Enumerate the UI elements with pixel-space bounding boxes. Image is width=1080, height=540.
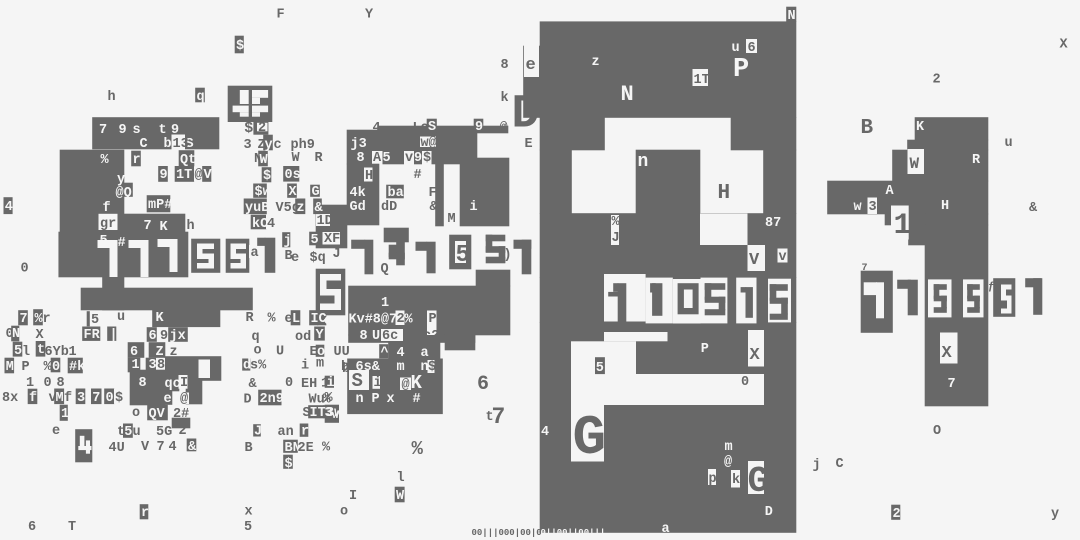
svg-text:f: f (64, 391, 72, 406)
svg-text:9: 9 (160, 329, 168, 344)
svg-text:9: 9 (414, 151, 422, 166)
svg-text:D: D (765, 505, 773, 520)
svg-text:Kv#8@7: Kv#8@7 (349, 313, 398, 328)
svg-text:P: P (701, 342, 709, 357)
svg-text:00|||000|00|0: 00|||000|00|0 (472, 528, 542, 538)
svg-text:9: 9 (160, 168, 168, 183)
svg-text:w@: w@ (421, 136, 437, 151)
svg-text:&: & (1029, 201, 1038, 216)
svg-text:z: z (297, 201, 305, 216)
svg-text:c: c (274, 138, 282, 153)
svg-text:z: z (170, 345, 178, 360)
svg-text:N: N (621, 82, 634, 107)
svg-text:X: X (1060, 38, 1069, 53)
svg-text:V: V (141, 440, 150, 455)
svg-text:W: W (292, 151, 301, 166)
svg-text:q: q (252, 330, 260, 345)
svg-text:b: b (164, 137, 172, 152)
svg-text:h: h (108, 90, 116, 105)
svg-text:%: % (322, 441, 331, 456)
svg-text:$: $ (428, 360, 436, 375)
svg-text:5: 5 (100, 234, 108, 249)
svg-text:P: P (22, 360, 30, 375)
svg-text:7: 7 (92, 391, 100, 406)
svg-text:0: 0 (106, 391, 114, 406)
svg-text:U: U (276, 345, 284, 360)
svg-text:3: 3 (869, 200, 877, 215)
svg-text:K: K (916, 120, 925, 135)
svg-text:u: u (133, 425, 141, 440)
svg-text:Q: Q (381, 262, 389, 277)
svg-text:f: f (29, 391, 37, 406)
svg-text:f: f (103, 201, 111, 216)
svg-text:4: 4 (397, 346, 405, 361)
svg-text:s: s (791, 299, 797, 310)
svg-text:i: i (301, 359, 309, 374)
svg-text:C: C (319, 312, 327, 327)
svg-text:an: an (278, 425, 294, 440)
svg-text:9: 9 (119, 123, 127, 138)
svg-text:y: y (265, 138, 273, 153)
svg-text:IT: IT (310, 406, 326, 421)
svg-text:9: 9 (171, 123, 179, 138)
svg-text:&: & (188, 440, 197, 455)
svg-text:K: K (411, 372, 423, 394)
svg-text:x: x (387, 392, 395, 407)
svg-text:l: l (397, 471, 405, 486)
svg-text:ƒ: ƒ (988, 281, 995, 293)
svg-text:1T: 1T (694, 73, 710, 88)
svg-text:gr: gr (100, 217, 116, 232)
svg-text:P: P (372, 392, 380, 407)
svg-text:5: 5 (456, 242, 470, 269)
svg-text:T: T (68, 520, 76, 535)
svg-text:#: # (414, 168, 422, 183)
svg-text:8: 8 (157, 358, 165, 373)
svg-text:1T: 1T (176, 168, 192, 183)
svg-text:o: o (340, 505, 348, 520)
svg-text:K: K (160, 220, 169, 235)
svg-text:EH: EH (301, 377, 317, 392)
svg-text:@: @ (500, 121, 508, 136)
svg-text:kC: kC (252, 217, 268, 232)
svg-text:@: @ (195, 168, 203, 183)
svg-text:I: I (311, 312, 319, 327)
svg-text:r: r (43, 312, 51, 327)
svg-text:4: 4 (169, 440, 177, 455)
svg-text:j: j (284, 234, 292, 249)
svg-text:t: t (159, 123, 167, 138)
svg-text:c2: c2 (423, 329, 439, 344)
svg-text:D: D (244, 393, 252, 408)
svg-text:B: B (861, 117, 874, 140)
svg-text:7: 7 (144, 219, 152, 234)
svg-text:X: X (36, 328, 45, 343)
svg-text:2#: 2# (173, 407, 189, 422)
svg-text:r: r (133, 153, 141, 168)
svg-text:X: X (942, 344, 953, 363)
svg-text:%: % (268, 312, 277, 327)
svg-text:D: D (512, 89, 540, 142)
svg-text:2: 2 (893, 507, 901, 522)
svg-text:qc: qc (165, 377, 181, 392)
svg-text:od: od (295, 330, 311, 345)
svg-text:6: 6 (28, 520, 36, 535)
svg-text:a: a (251, 246, 259, 261)
svg-text:M: M (448, 212, 456, 227)
svg-text:6c: 6c (382, 329, 398, 344)
svg-text:6: 6 (748, 41, 756, 56)
svg-text:l: l (22, 345, 30, 360)
svg-text:N: N (788, 9, 796, 24)
svg-text:0: 0 (285, 376, 293, 391)
svg-text:0: 0 (21, 262, 29, 277)
svg-text:2: 2 (933, 73, 941, 88)
svg-text:y: y (1051, 507, 1059, 522)
svg-text:X: X (289, 185, 298, 200)
svg-text:%: % (612, 215, 621, 230)
svg-text:7: 7 (492, 404, 506, 430)
svg-text:UU: UU (334, 345, 350, 360)
svg-text:$: $ (236, 39, 244, 54)
svg-text:x: x (245, 505, 253, 520)
svg-text:N: N (12, 327, 20, 342)
svg-text:P: P (733, 55, 749, 85)
svg-text:e: e (164, 392, 172, 407)
svg-text:7: 7 (948, 377, 956, 392)
svg-text:2: 2 (179, 424, 187, 439)
svg-text:m: m (725, 440, 733, 455)
svg-text:5: 5 (383, 151, 391, 166)
svg-text:8: 8 (360, 329, 368, 344)
svg-text:G: G (573, 406, 607, 470)
svg-text:V: V (749, 251, 760, 270)
svg-text:H: H (941, 199, 949, 214)
svg-text:#: # (118, 236, 126, 251)
svg-text:M: M (56, 391, 64, 406)
svg-text:I: I (180, 376, 188, 391)
svg-text:5: 5 (124, 425, 132, 440)
svg-text:a: a (662, 522, 670, 537)
svg-text:G: G (312, 185, 320, 200)
svg-text:F: F (277, 8, 285, 23)
svg-text:C: C (140, 137, 148, 152)
svg-text:R: R (315, 151, 324, 166)
svg-text:S: S (352, 370, 363, 392)
svg-text:i: i (327, 376, 335, 391)
svg-text:h: h (187, 219, 195, 234)
svg-text:E: E (525, 137, 533, 152)
svg-text:O: O (933, 424, 941, 439)
svg-text:%: % (412, 438, 424, 460)
svg-text:k: k (732, 473, 740, 488)
svg-text:4: 4 (541, 425, 549, 440)
svg-text:5: 5 (311, 233, 319, 248)
svg-text:u: u (732, 41, 740, 56)
svg-text:6Yb: 6Yb (45, 345, 69, 360)
svg-text:u: u (1005, 136, 1013, 151)
svg-text:yuB: yuB (245, 201, 269, 216)
svg-text:3: 3 (244, 138, 252, 153)
svg-text:8: 8 (357, 151, 365, 166)
svg-text:j3: j3 (351, 137, 367, 152)
svg-text:5: 5 (14, 344, 22, 359)
svg-text:87: 87 (765, 216, 781, 231)
svg-text:C: C (836, 457, 844, 472)
svg-text:5: 5 (91, 313, 99, 328)
svg-text:A: A (373, 151, 382, 166)
svg-text:8: 8 (139, 376, 147, 391)
svg-text:i: i (470, 200, 478, 215)
svg-text:J: J (333, 247, 341, 262)
svg-text:z: z (592, 55, 600, 70)
svg-text:s%: s% (250, 359, 267, 374)
svg-text:6: 6 (149, 329, 157, 344)
svg-text:I: I (349, 489, 357, 504)
svg-text:K: K (156, 311, 165, 326)
svg-text:R: R (972, 153, 981, 168)
svg-text:7: 7 (99, 123, 107, 138)
svg-text:2: 2 (258, 121, 266, 136)
svg-text:0: 0 (52, 360, 60, 375)
svg-text:n: n (356, 392, 364, 407)
svg-text:W: W (396, 489, 405, 504)
svg-text:4: 4 (373, 121, 381, 136)
svg-text:7: 7 (157, 440, 165, 455)
svg-text:Qt: Qt (180, 153, 196, 168)
svg-text:jx: jx (170, 329, 186, 344)
svg-text:8: 8 (57, 376, 65, 391)
svg-text:@: @ (402, 378, 410, 393)
svg-text:u: u (117, 310, 125, 325)
svg-text:H: H (718, 182, 731, 205)
svg-text:$w: $w (255, 185, 272, 200)
svg-text:3: 3 (77, 391, 85, 406)
svg-text:4: 4 (267, 217, 275, 232)
svg-text:dD: dD (381, 200, 397, 215)
svg-text:$: $ (285, 457, 293, 472)
svg-text:1: 1 (381, 296, 389, 311)
svg-text:U: U (372, 329, 380, 344)
svg-text:): ) (504, 248, 512, 263)
svg-text:$: $ (115, 391, 123, 406)
svg-text:w: w (333, 411, 339, 422)
svg-text:e: e (52, 424, 60, 439)
svg-text:v: v (779, 250, 787, 265)
svg-text:1: 1 (894, 209, 912, 243)
svg-text:1: 1 (132, 358, 140, 373)
svg-text:P: P (429, 312, 437, 327)
svg-text:k: k (501, 91, 509, 106)
svg-text:e: e (526, 56, 536, 75)
svg-text:8: 8 (501, 58, 509, 73)
svg-text:m: m (397, 360, 405, 375)
svg-text:FR: FR (84, 328, 101, 343)
svg-text:0s: 0s (285, 168, 301, 183)
svg-text:e: e (291, 251, 299, 266)
svg-text:M: M (6, 360, 14, 375)
svg-text:S: S (428, 120, 436, 135)
svg-text:w: w (854, 200, 863, 215)
svg-text:3: 3 (325, 406, 333, 421)
svg-text:r: r (301, 425, 309, 440)
svg-text:&: & (315, 201, 324, 216)
svg-text:1: 1 (26, 376, 34, 391)
svg-text:r: r (141, 506, 149, 521)
svg-text:1: 1 (61, 407, 69, 422)
svg-text:v: v (405, 151, 413, 166)
svg-text:0: 0 (44, 376, 52, 391)
svg-text:#k: #k (69, 360, 85, 375)
svg-text:B: B (245, 441, 253, 456)
svg-text:mP#: mP# (148, 198, 172, 213)
svg-text:7: 7 (862, 263, 868, 274)
svg-text:2: 2 (397, 312, 405, 327)
svg-text:QV: QV (149, 407, 166, 422)
svg-text:13: 13 (173, 137, 189, 152)
svg-text:Gd: Gd (350, 200, 366, 215)
svg-text:m: m (316, 357, 324, 372)
svg-text:H: H (365, 169, 373, 184)
svg-text:$q: $q (310, 251, 326, 266)
svg-text:&: & (430, 200, 439, 215)
svg-text:V: V (204, 168, 213, 183)
svg-text:j: j (813, 458, 821, 473)
svg-text:L: L (292, 312, 300, 327)
svg-text:s: s (133, 123, 141, 138)
svg-text:@: @ (180, 392, 188, 407)
svg-text:Lo: Lo (413, 121, 429, 136)
svg-text:5: 5 (244, 520, 252, 535)
svg-text:a: a (421, 346, 429, 361)
svg-text:9: 9 (475, 120, 483, 135)
svg-text:#: # (413, 392, 421, 407)
svg-text:b: b (341, 360, 349, 375)
svg-text:0: 0 (741, 375, 749, 390)
svg-text:ba: ba (388, 186, 404, 201)
svg-text:R: R (246, 311, 255, 326)
svg-text:o: o (132, 406, 140, 421)
svg-text:2n9: 2n9 (260, 392, 284, 407)
svg-text:XF: XF (324, 232, 340, 247)
svg-text:@: @ (724, 455, 732, 470)
svg-text:i: i (374, 376, 382, 391)
svg-text:2E: 2E (298, 441, 314, 456)
svg-text:W: W (260, 153, 269, 168)
svg-text:G: G (748, 461, 770, 502)
svg-text:q: q (197, 90, 205, 105)
svg-text:5: 5 (596, 361, 604, 376)
svg-text:^: ^ (381, 346, 389, 361)
svg-text:|: | (110, 328, 118, 343)
svg-text:A: A (886, 184, 895, 199)
svg-text:p: p (709, 472, 717, 487)
svg-text:3: 3 (149, 358, 157, 373)
svg-text:J: J (254, 425, 262, 440)
svg-text:4U: 4U (109, 441, 125, 456)
svg-text:&: & (249, 377, 258, 392)
svg-text:J: J (612, 231, 620, 246)
svg-text:$: $ (244, 120, 253, 137)
svg-text:@Q: @Q (116, 186, 132, 201)
svg-text:$: $ (423, 151, 431, 166)
svg-text:4: 4 (5, 200, 13, 215)
svg-text:Y: Y (365, 8, 374, 23)
svg-text:0||00||00|||: 0||00||00||| (541, 528, 606, 538)
svg-text:8x: 8x (2, 391, 18, 406)
svg-text:5G: 5G (156, 425, 172, 440)
svg-text:%: % (101, 153, 110, 168)
svg-text:1: 1 (69, 345, 77, 360)
svg-text:7: 7 (20, 312, 28, 327)
svg-text:Y: Y (316, 328, 325, 343)
svg-text:o: o (254, 344, 262, 359)
svg-text:%: % (405, 313, 414, 328)
svg-text:X: X (750, 346, 761, 365)
svg-text:$: $ (263, 169, 271, 184)
svg-text:6: 6 (477, 373, 489, 396)
svg-text:1D: 1D (317, 214, 333, 229)
svg-text:4k: 4k (350, 186, 366, 201)
svg-text:F: F (429, 186, 437, 201)
svg-text:W: W (910, 155, 920, 173)
svg-text:n: n (638, 152, 649, 172)
